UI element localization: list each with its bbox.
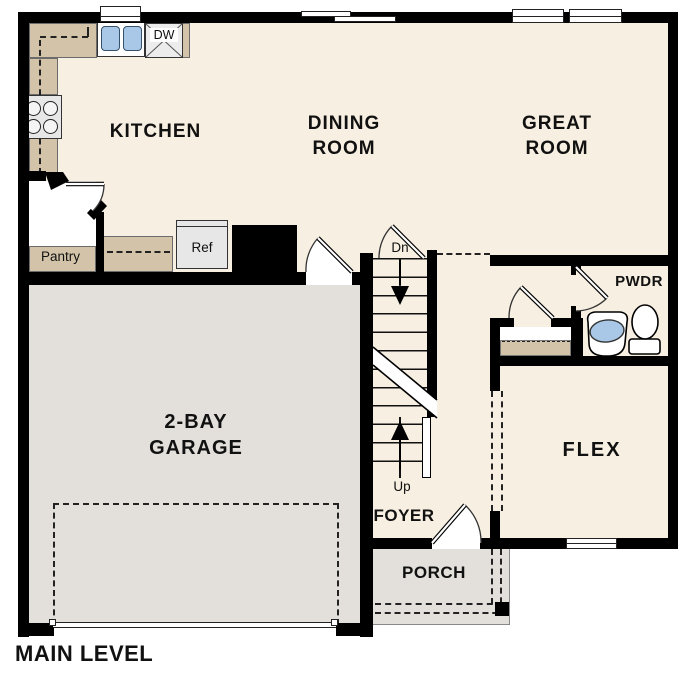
room-label-pantry: Pantry [33,249,88,264]
room-label-porch: PORCH [398,563,470,583]
symbol-layer [0,0,687,687]
room-label-kitchen: KITCHEN [103,121,208,143]
stairs-down-label: Dn [386,240,414,255]
room-label-great-room: GREATROOM [507,111,607,161]
room-label-garage: 2-BAYGARAGE [146,409,246,461]
stairs-down-arrow-icon [391,260,409,305]
room-label-pwdr: PWDR [610,273,668,290]
room-label-dining: DININGROOM [294,111,394,161]
dishwasher-label: DW [150,28,178,42]
refrigerator-label: Ref [179,240,225,255]
floor-plan: KITCHEN DININGROOM GREATROOM 2-BAYGARAGE… [0,0,687,687]
front-door [432,505,481,548]
pedestal-sink-icon [588,312,628,356]
stairs-up-label: Up [388,479,416,494]
closet-door [509,287,553,318]
plan-title: MAIN LEVEL [15,641,235,667]
toilet-icon [629,305,660,354]
room-label-foyer: FOYER [370,506,438,526]
garage-entry-door [306,238,352,285]
stair-break-line [373,347,437,418]
stairs-up-arrow-icon [391,421,409,470]
pwdr-door [576,267,607,311]
room-label-flex: FLEX [540,439,644,462]
pantry-door [45,172,107,220]
